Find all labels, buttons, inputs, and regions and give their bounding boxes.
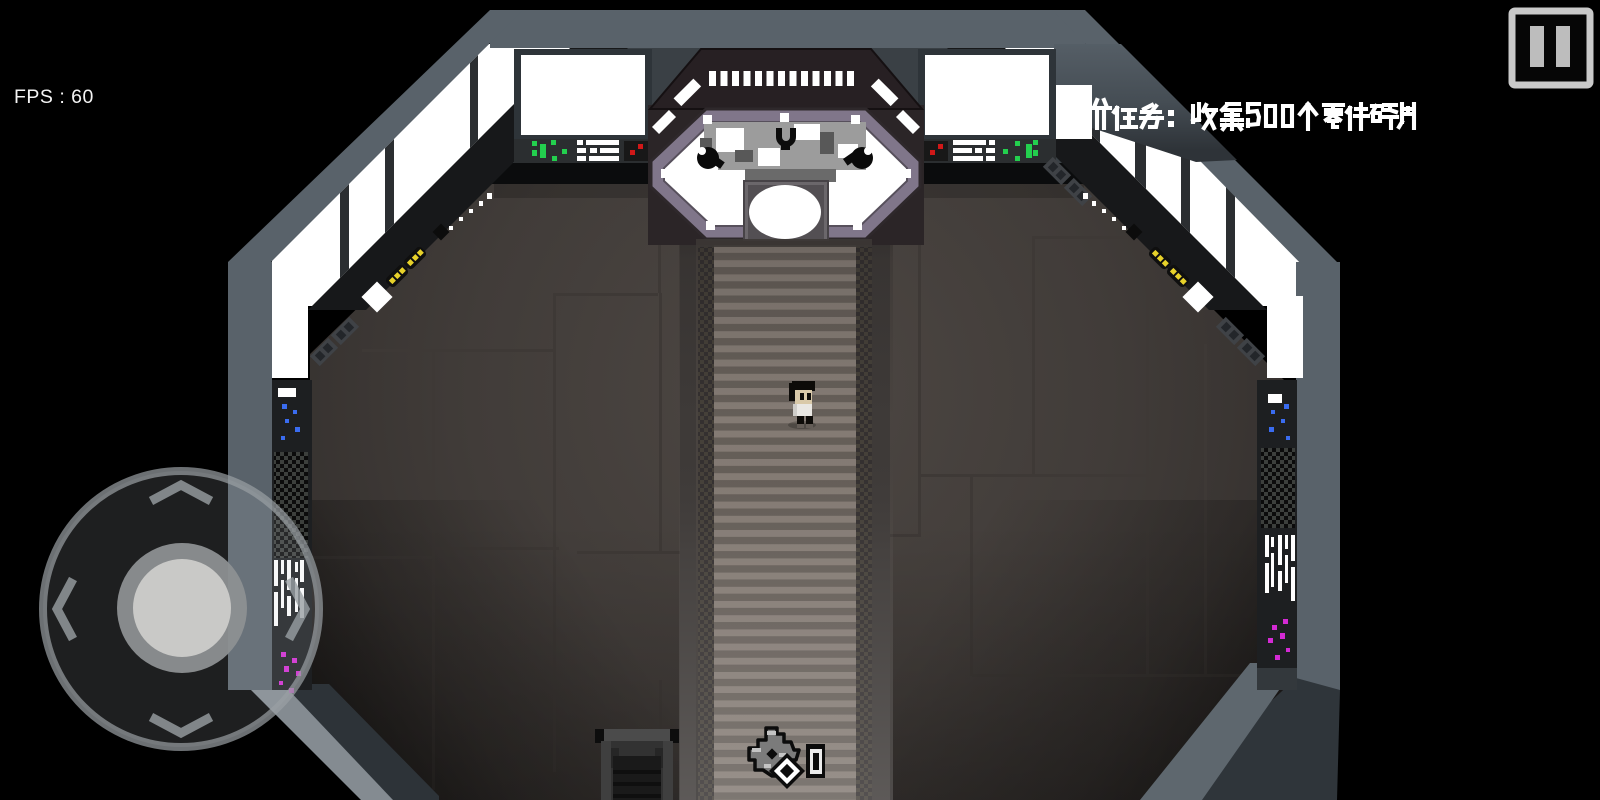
svg-text:FPS : 60: FPS : 60 xyxy=(14,86,94,108)
